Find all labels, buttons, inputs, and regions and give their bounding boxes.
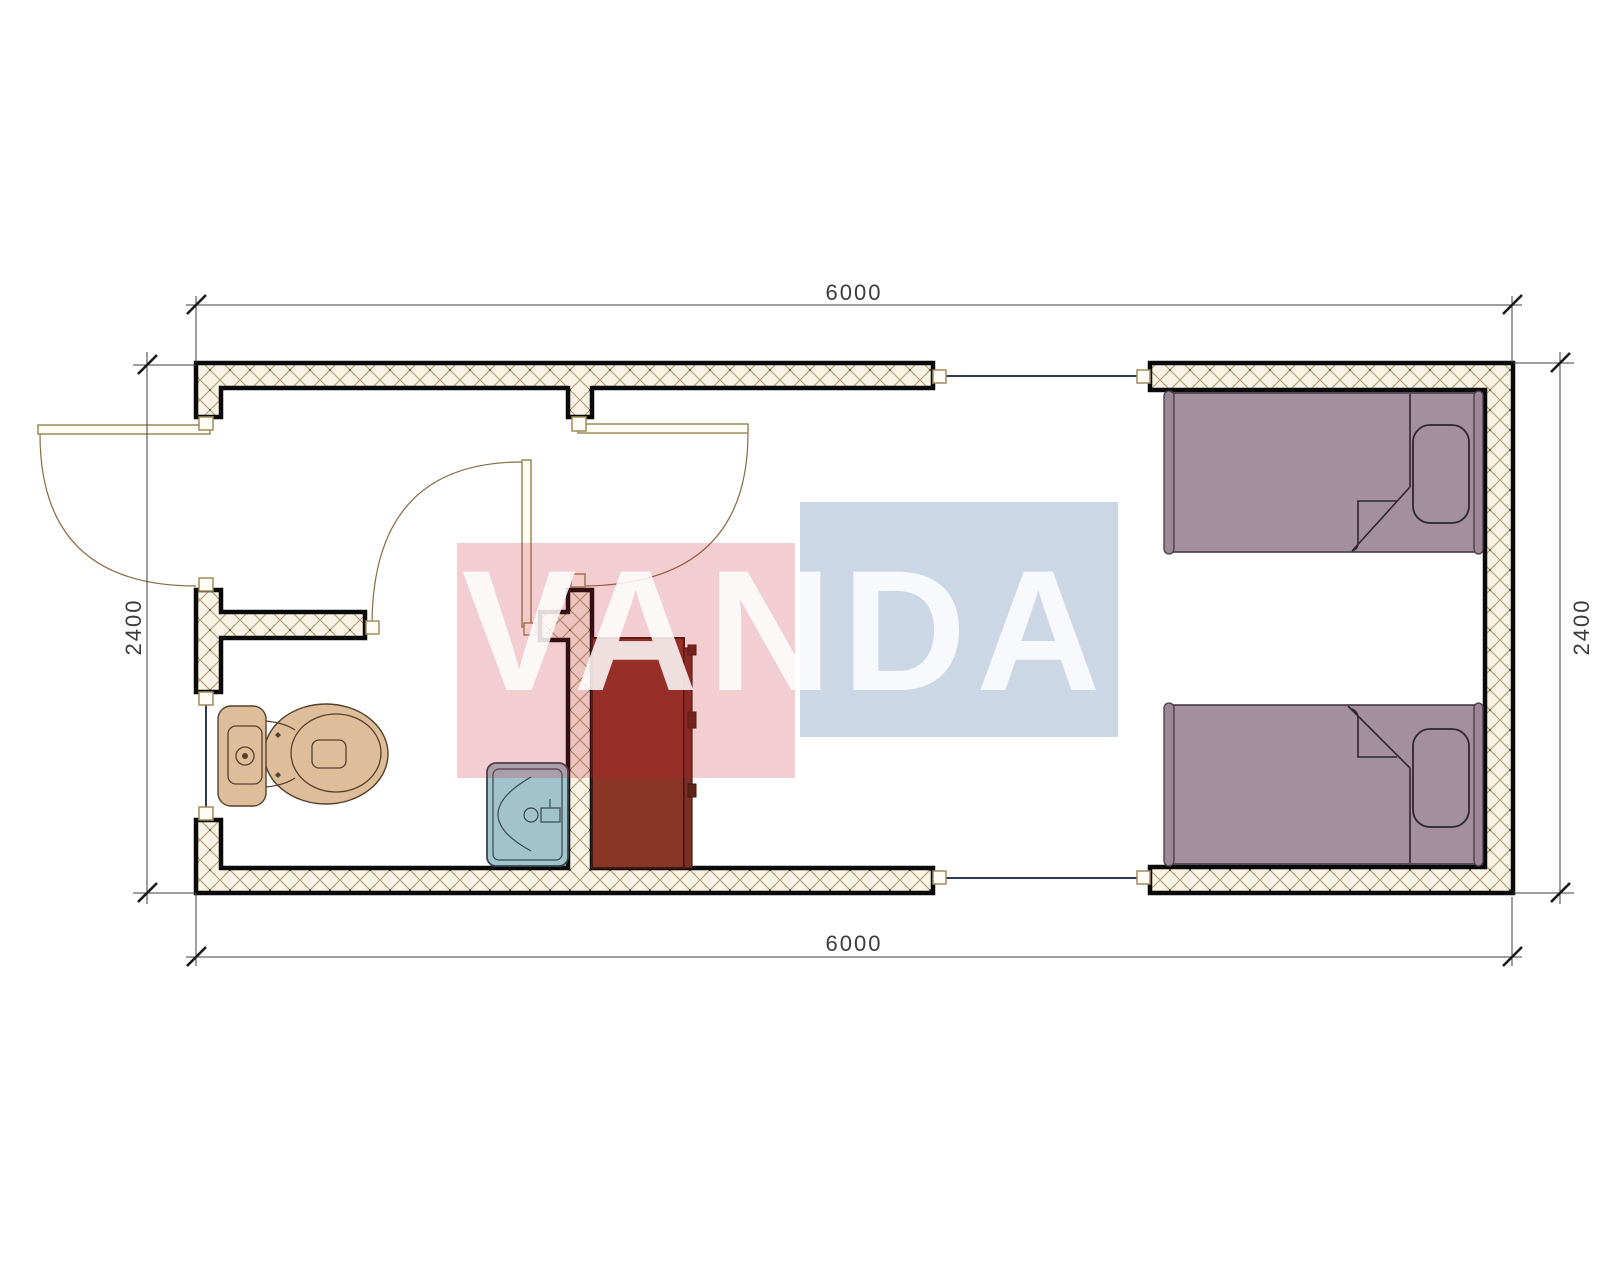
door-room-leaf <box>578 424 748 433</box>
toilet-flush-knob-dot <box>242 753 248 759</box>
watermark: VANDA <box>457 502 1118 778</box>
door-jamb <box>366 621 379 634</box>
door-entry-swing-arc <box>40 434 196 586</box>
bed-headboard <box>1164 391 1174 554</box>
bed-1 <box>1164 391 1483 554</box>
toilet <box>218 704 388 806</box>
bed-headboard <box>1164 703 1174 866</box>
bed-2 <box>1164 703 1483 866</box>
dimension-left-label: 2400 <box>121 599 146 656</box>
bed-pillow <box>1413 729 1469 827</box>
wall-partition-left-t <box>196 590 365 692</box>
door-jamb <box>572 417 586 431</box>
bed-footboard <box>1474 391 1483 554</box>
window-jamb <box>933 871 946 884</box>
dimension-bottom-label: 6000 <box>826 931 883 956</box>
dimension-top: 6000 <box>186 280 1522 363</box>
dimension-bottom: 6000 <box>186 893 1522 966</box>
door-jamb <box>199 578 213 591</box>
toilet-bowl <box>264 704 388 804</box>
bed-footboard <box>1474 703 1483 866</box>
bed-pillow <box>1413 425 1469 523</box>
window-jamb <box>199 692 213 705</box>
cabinet-handle <box>688 784 696 797</box>
door-jamb <box>199 417 213 430</box>
dimension-right: 2400 <box>1513 352 1594 904</box>
dimension-left: 2400 <box>121 352 196 904</box>
dimension-right-label: 2400 <box>1569 599 1594 656</box>
dimension-top-label: 6000 <box>826 280 883 305</box>
floor-plan-svg: 6000 6000 2400 2400 VANDA <box>0 0 1600 1280</box>
floor-plan-canvas: 6000 6000 2400 2400 VANDA <box>0 0 1600 1280</box>
watermark-text: VANDA <box>462 535 1111 727</box>
window-jamb <box>933 370 946 383</box>
window-jamb <box>1137 871 1150 884</box>
window-jamb <box>199 807 213 820</box>
sink <box>487 763 568 866</box>
window-jamb <box>1137 370 1150 383</box>
door-entry-leaf <box>38 425 210 434</box>
wall-top-left <box>196 363 933 417</box>
